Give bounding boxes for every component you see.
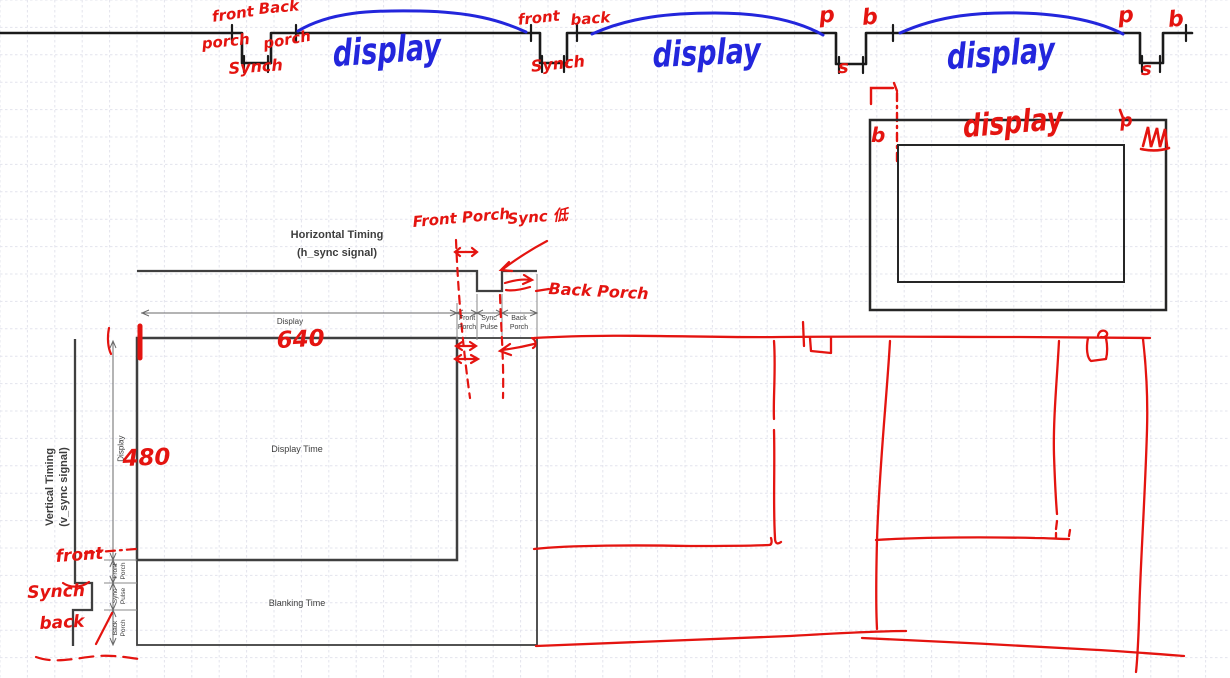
screen-b-label: b	[871, 124, 885, 147]
red-v-3	[1054, 341, 1059, 538]
red-v-back-label: back	[39, 613, 85, 635]
fp-measure-arrow-1	[456, 342, 476, 350]
pulse2-back-label: back	[570, 9, 611, 29]
h-timing-title-line2: (h_sync signal)	[257, 247, 417, 260]
h-dim-sync-pulse-label: Sync Pulse	[474, 314, 504, 332]
display-word-1: display	[332, 26, 442, 76]
h-dim-back-porch-label: Back Porch	[502, 314, 536, 332]
pulse4-b-label: b	[1167, 7, 1185, 34]
red-v-front-label: front	[55, 545, 104, 568]
display-word-2: display	[652, 31, 761, 76]
whiteboard-canvas[interactable]: front porch Back porch Synch front back …	[0, 0, 1230, 678]
screen-rectangles-sketch	[870, 120, 1166, 310]
front-porch-double-arrow	[455, 248, 477, 256]
blanking-time-label: Blanking Time	[247, 598, 347, 608]
screen-p-label: p	[1119, 111, 1134, 133]
corner-bracket	[871, 83, 897, 104]
red-h-bottom-right	[862, 638, 1184, 656]
red-h-top	[534, 336, 1150, 338]
red-grid-sketch	[534, 322, 1184, 672]
bp-measure-arrow	[500, 338, 536, 355]
red-v-synch-label: Synch	[27, 582, 85, 604]
red-h-bottom-left	[536, 631, 906, 646]
v-timing-title: Vertical Timing (v_sync signal)	[43, 432, 71, 542]
red-v-2	[876, 341, 890, 629]
pulse4-p-label: p	[1117, 3, 1135, 30]
red-480-value: 480	[122, 444, 171, 472]
sync-pointer-arrow	[501, 241, 547, 271]
display-word-3: display	[946, 31, 1056, 79]
red-640-value: 640	[276, 325, 325, 354]
red-h-mid-left	[534, 538, 772, 549]
v-dim-back-porch-label: Back Porch	[112, 611, 128, 645]
pulse3-b-label: b	[861, 5, 879, 32]
red-v-4	[1136, 339, 1147, 672]
h-timing-title-line1: Horizontal Timing	[257, 229, 417, 242]
pulse4-s-label: s	[1141, 60, 1152, 81]
pulse3-s-label: s	[838, 58, 849, 79]
back-porch-arrow	[505, 275, 549, 291]
red-v-1	[774, 341, 781, 543]
dashed-sync-line	[500, 295, 503, 398]
h-dim-display-label: Display	[240, 317, 340, 326]
display-arc-3	[900, 13, 1123, 34]
v-dim-sync-pulse-label: Sync Pulse	[112, 579, 128, 613]
pulse3-p-label: p	[818, 3, 836, 30]
pulse1-synch-label: Synch	[228, 56, 283, 78]
display-time-label: Display Time	[247, 444, 347, 454]
back-porch-diagonal	[96, 613, 112, 644]
